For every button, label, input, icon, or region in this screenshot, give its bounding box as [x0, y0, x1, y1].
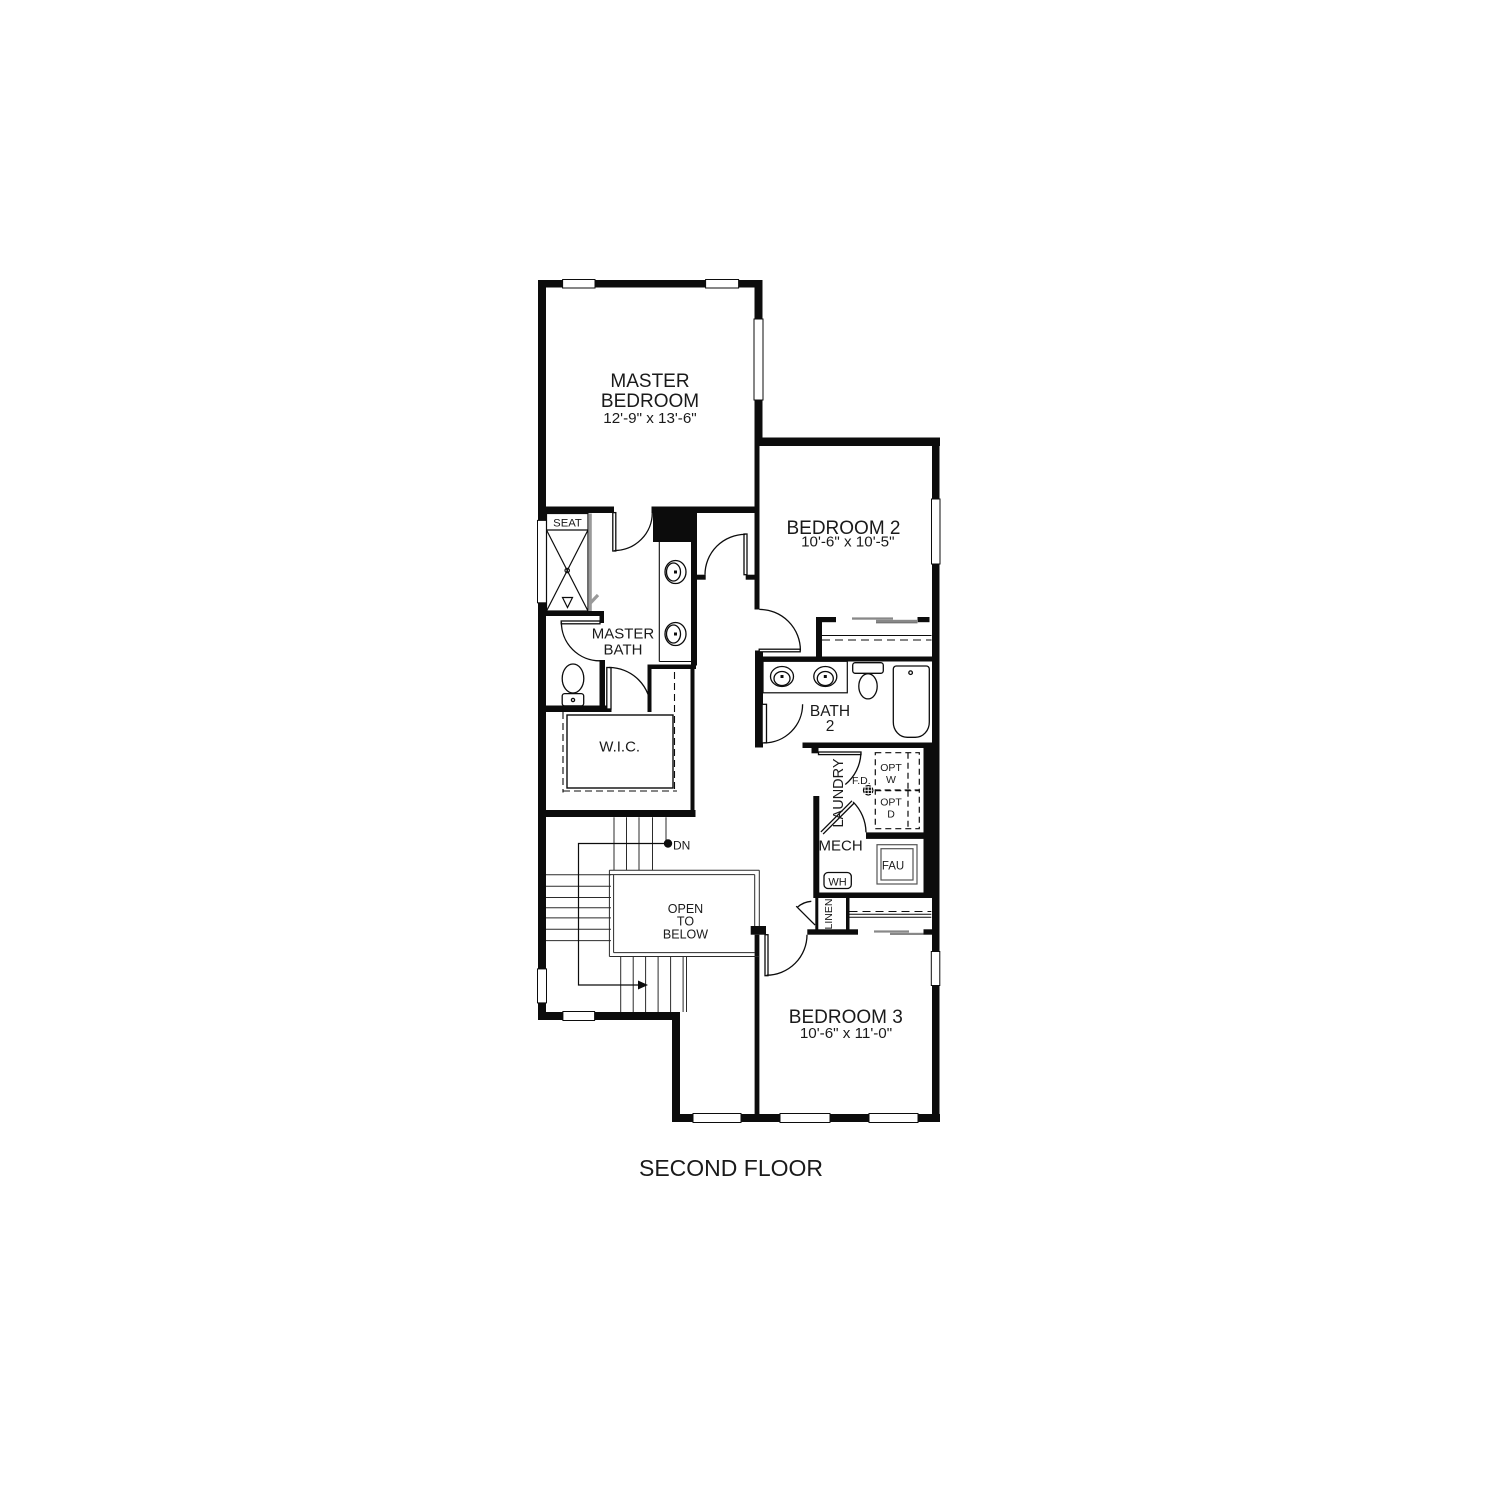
svg-text:W: W [886, 774, 896, 786]
svg-text:MECH: MECH [819, 838, 863, 855]
svg-text:BEDROOM: BEDROOM [601, 391, 699, 412]
svg-text:BELOW: BELOW [663, 928, 708, 942]
svg-text:LAUNDRY: LAUNDRY [831, 758, 847, 827]
svg-text:OPT: OPT [880, 797, 902, 809]
svg-text:LINEN: LINEN [823, 899, 835, 930]
svg-text:FAU: FAU [882, 861, 904, 873]
svg-text:SECOND FLOOR: SECOND FLOOR [639, 1155, 823, 1181]
svg-text:MASTER: MASTER [610, 371, 689, 392]
svg-text:W.I.C.: W.I.C. [599, 739, 640, 756]
svg-text:10'-6" x 10'-5": 10'-6" x 10'-5" [801, 534, 894, 551]
svg-text:WH: WH [828, 877, 846, 889]
svg-text:BATH: BATH [604, 642, 643, 659]
svg-text:D: D [887, 809, 895, 821]
svg-text:OPT: OPT [880, 762, 902, 774]
svg-text:10'-6" x 11'-0": 10'-6" x 11'-0" [800, 1025, 892, 1042]
svg-text:2: 2 [826, 718, 835, 735]
svg-text:SEAT: SEAT [553, 518, 582, 530]
svg-text:MASTER: MASTER [592, 626, 655, 643]
svg-text:TO: TO [677, 915, 694, 929]
svg-text:12'-9" x 13'-6": 12'-9" x 13'-6" [603, 410, 696, 427]
svg-text:DN: DN [673, 839, 690, 853]
